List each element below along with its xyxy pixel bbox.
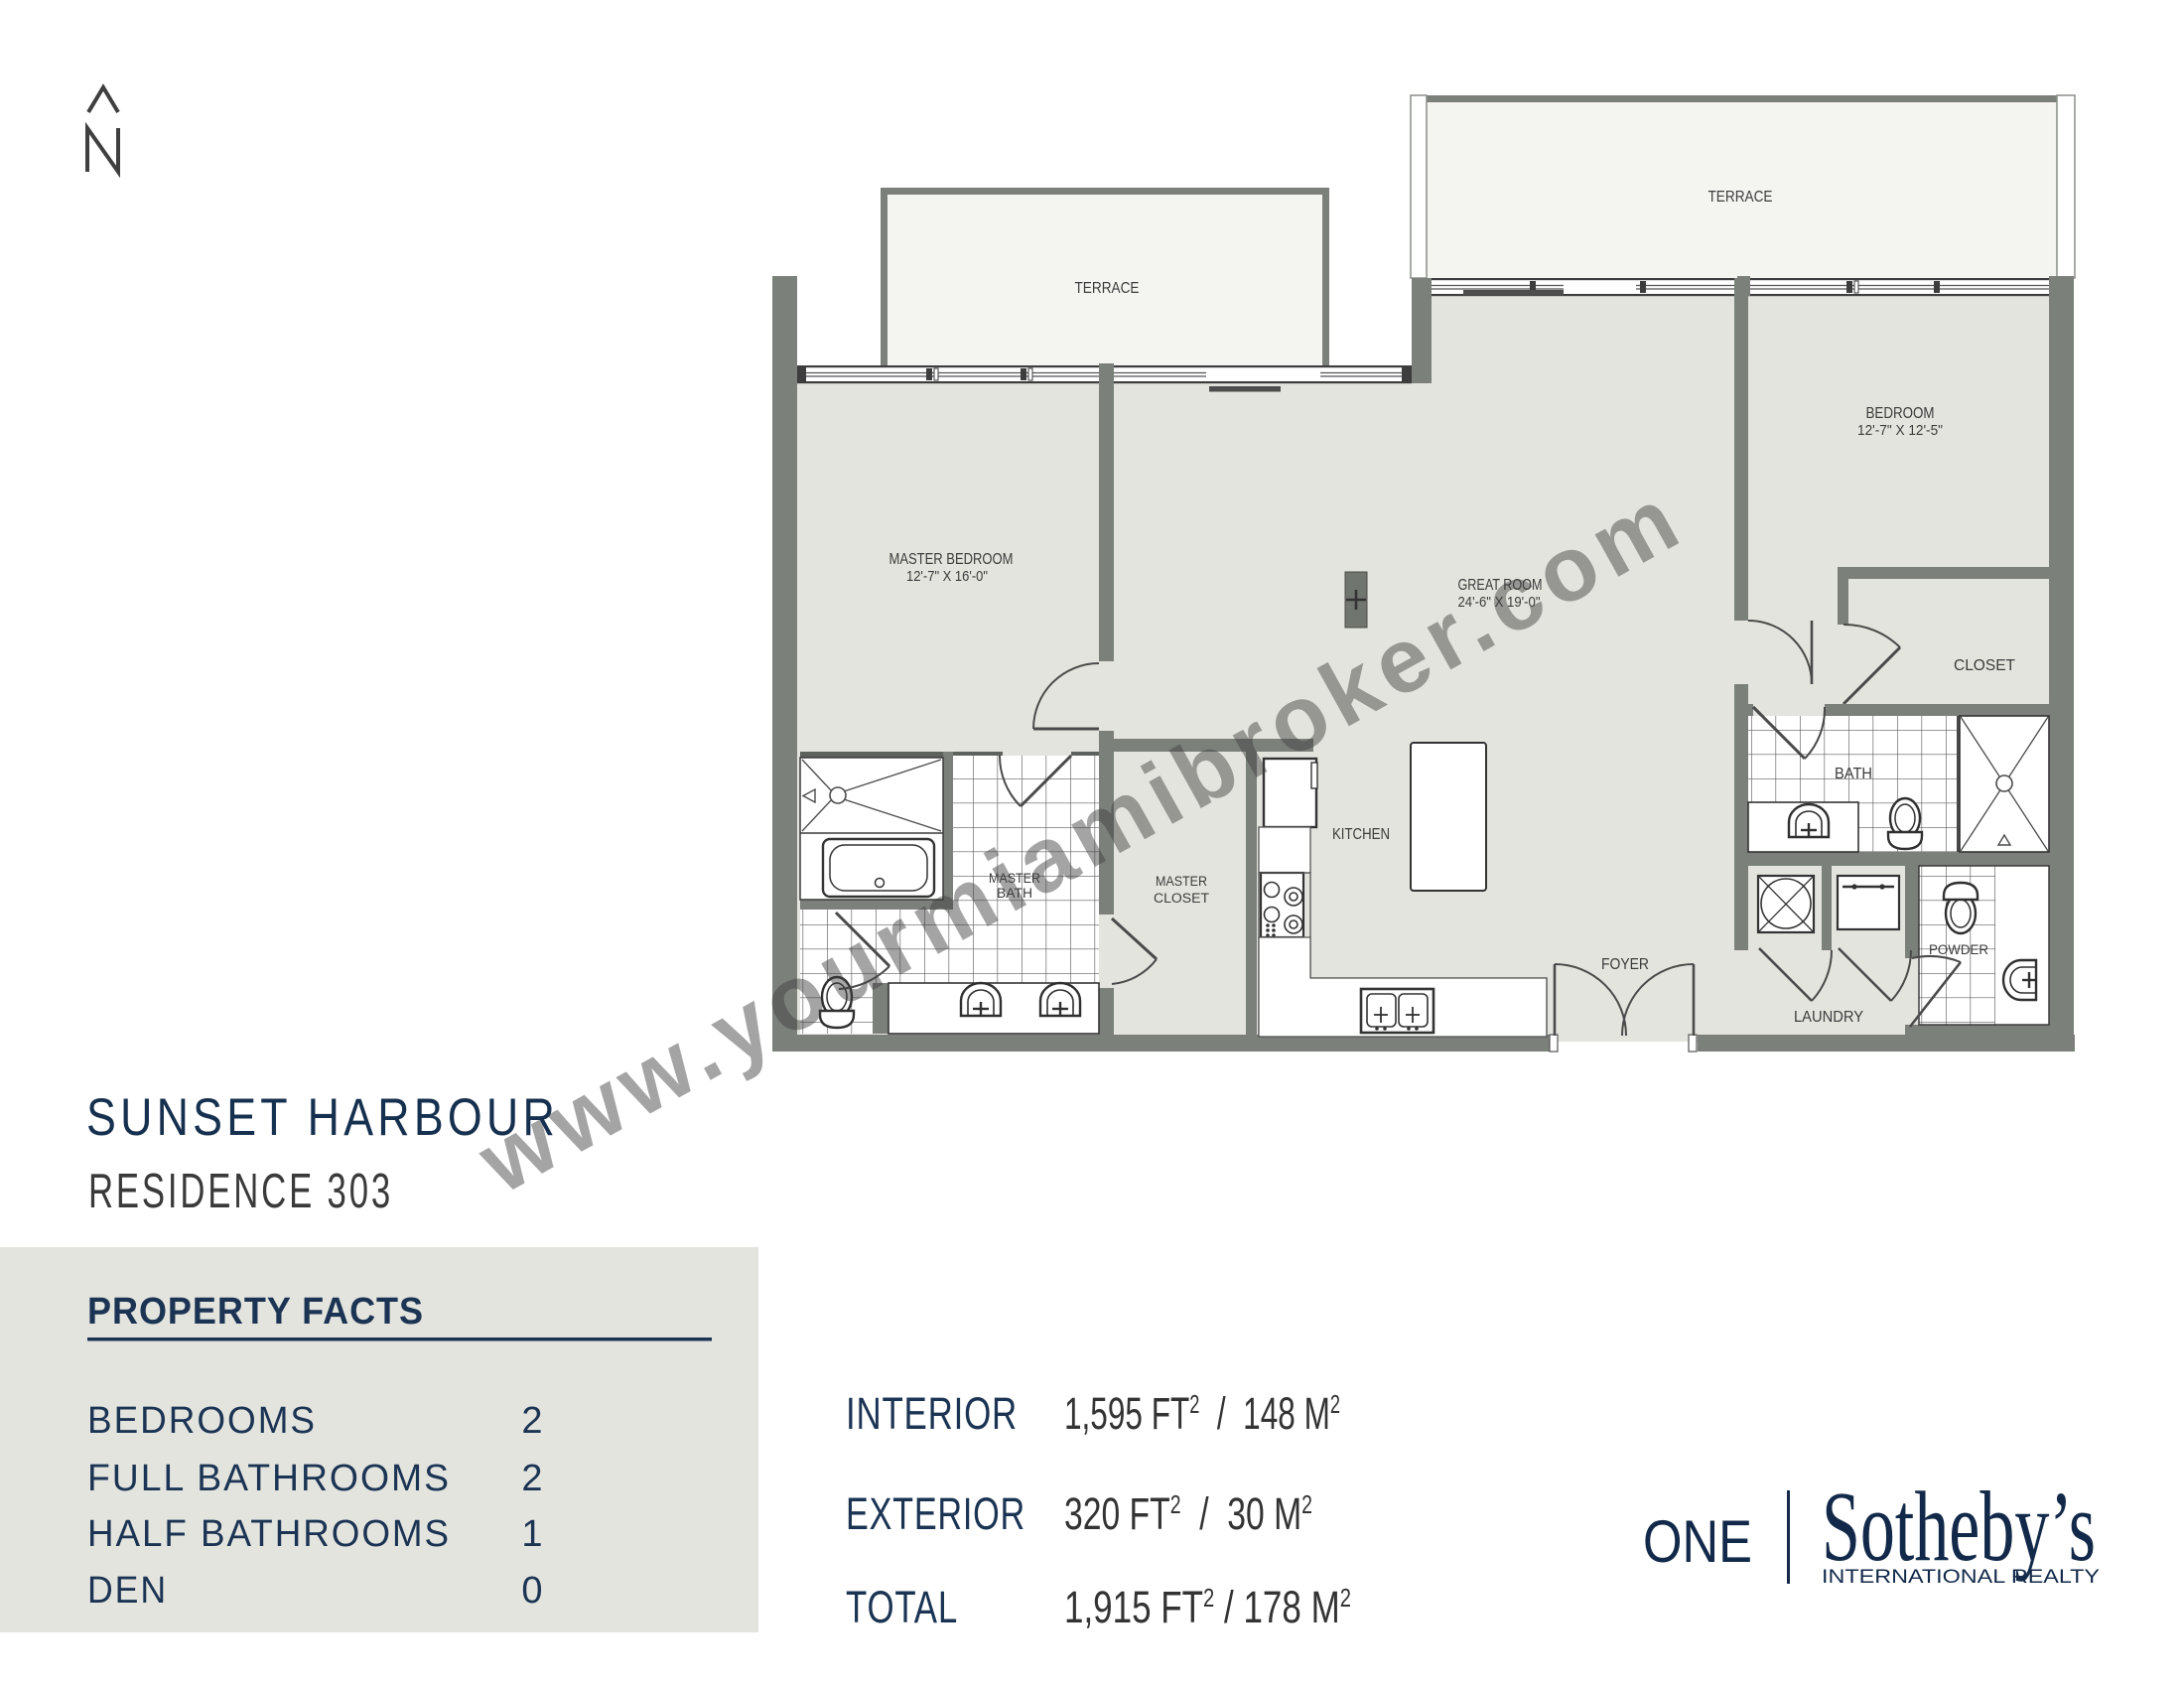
svg-text:BEDROOMS: BEDROOMS [87,1400,317,1442]
svg-text:PROPERTY FACTS: PROPERTY FACTS [87,1291,424,1333]
svg-text:DEN: DEN [87,1570,168,1612]
svg-text:1: 1 [521,1513,542,1555]
svg-text:12'-7" X 12'-5": 12'-7" X 12'-5" [1857,422,1943,439]
svg-text:MASTER: MASTER [1156,874,1207,889]
svg-text:SUNSET HARBOUR: SUNSET HARBOUR [86,1088,559,1147]
svg-text:TERRACE: TERRACE [1075,280,1140,297]
svg-text:FOYER: FOYER [1601,956,1649,973]
svg-text:0: 0 [521,1570,542,1612]
svg-text:LAUNDRY: LAUNDRY [1794,1009,1863,1026]
svg-text:BEDROOM: BEDROOM [1866,405,1935,422]
svg-text:EXTERIOR: EXTERIOR [846,1488,1025,1539]
svg-text:HALF BATHROOMS: HALF BATHROOMS [87,1513,451,1555]
svg-text:POWDER: POWDER [1929,942,1988,957]
svg-text:ONE: ONE [1643,1508,1752,1575]
svg-text:TOTAL: TOTAL [846,1582,958,1632]
svg-text:TERRACE: TERRACE [1708,189,1773,206]
svg-text:CLOSET: CLOSET [1154,891,1209,906]
svg-text:KITCHEN: KITCHEN [1332,826,1390,843]
svg-text:Sotheby’s: Sotheby’s [1822,1471,2096,1582]
svg-text:INTERIOR: INTERIOR [846,1388,1018,1439]
svg-text:2: 2 [521,1400,542,1442]
svg-text:1,595 FT2 / 148 M2: 1,595 FT2 / 148 M2 [1064,1388,1340,1439]
svg-text:2: 2 [521,1458,542,1499]
svg-text:RESIDENCE 303: RESIDENCE 303 [88,1165,393,1218]
svg-text:CLOSET: CLOSET [1954,657,2016,674]
svg-text:MASTER BEDROOM: MASTER BEDROOM [889,551,1014,568]
svg-text:12'-7" X 16'-0": 12'-7" X 16'-0" [906,568,988,585]
svg-text:320 FT2 / 30 M2: 320 FT2 / 30 M2 [1064,1488,1312,1539]
svg-text:BATH: BATH [1835,766,1872,782]
svg-text:INTERNATIONAL REALTY: INTERNATIONAL REALTY [1822,1567,2100,1588]
svg-text:FULL BATHROOMS: FULL BATHROOMS [87,1458,451,1499]
